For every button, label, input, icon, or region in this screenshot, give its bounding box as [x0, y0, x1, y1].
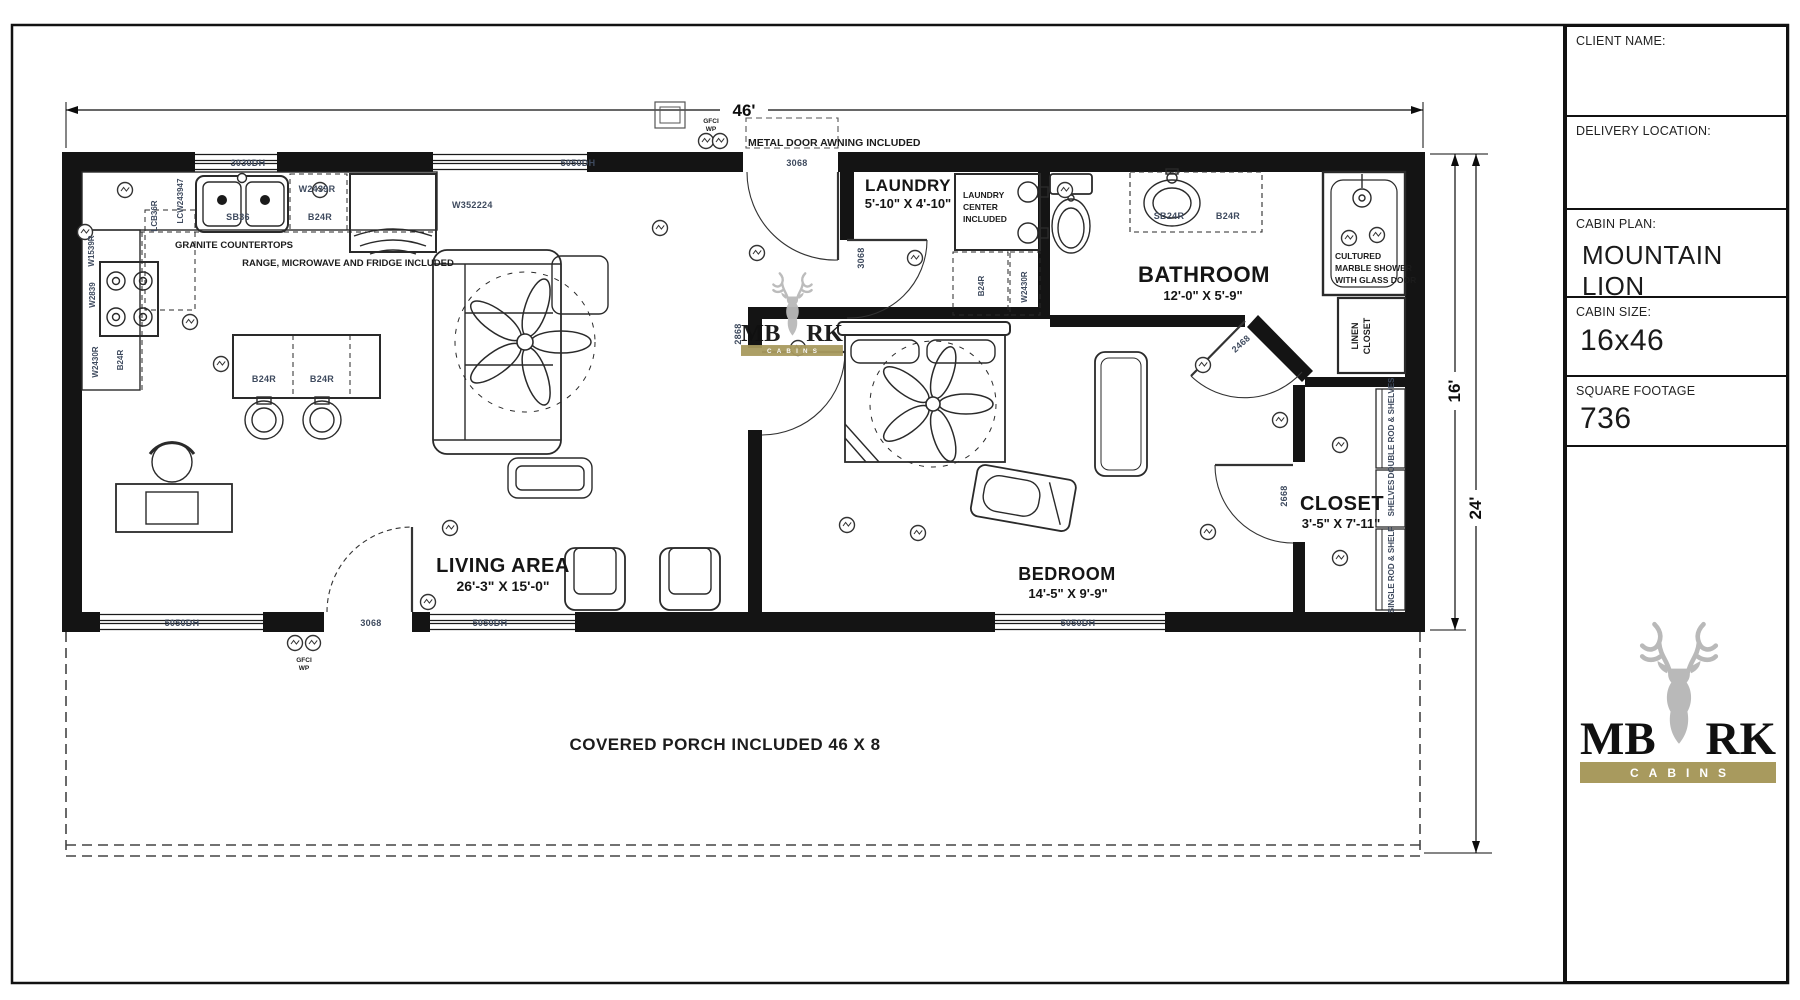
room-laundry-name: LAUNDRY — [865, 176, 951, 195]
ceiling-fan — [455, 272, 595, 412]
note-appliances: RANGE, MICROWAVE AND FRIDGE INCLUDED — [242, 258, 454, 269]
coffee-table — [508, 458, 592, 498]
label-laundry-base: B24R — [977, 276, 986, 297]
cabin-size-box: CABIN SIZE: 16x46 — [1565, 298, 1788, 377]
fridge — [350, 174, 436, 254]
dim-cabin-depth: 16' — [1445, 380, 1464, 403]
room-closet-size: 3'-5" X 7'-11" — [1302, 516, 1381, 531]
note-gfci-bottom-2: WP — [299, 665, 310, 672]
dim-overall-depth: 24' — [1466, 497, 1485, 520]
floor-plan-drawing: 46' 16' 24' — [0, 0, 1800, 1000]
brand-word-left: MB — [741, 321, 780, 345]
cabin-size-label: CABIN SIZE: — [1576, 305, 1777, 319]
label-vanity-sink-base: SB24R — [1154, 211, 1185, 221]
sofa — [433, 250, 561, 454]
note-linen-2: CLOSET — [1362, 317, 1372, 354]
laundry-center — [955, 174, 1048, 250]
kitchen-sink — [196, 174, 288, 233]
note-laundry-center-1: LAUNDRY — [963, 190, 1005, 200]
cabin-plan-value: MOUNTAIN LION — [1582, 240, 1777, 302]
mbark-watermark-logo: MB RK CABINS — [741, 292, 843, 370]
note-linen-1: LINEN — [1350, 323, 1360, 350]
note-granite: GRANITE COUNTERTOPS — [175, 240, 293, 251]
label-porch-door: 3068 — [360, 618, 381, 628]
brand-subtitle: CABINS — [762, 347, 822, 354]
mbark-logo: MB RK CABINS — [1580, 660, 1776, 810]
label-laundry-wall: W2430R — [1020, 271, 1029, 302]
note-gfci-top-2: WP — [706, 126, 717, 133]
bar-stool — [245, 397, 283, 439]
label-closet-double-rod: DOUBLE ROD & SHELVES — [1387, 377, 1396, 478]
room-living-name: LIVING AREA — [436, 555, 570, 577]
armchair — [660, 548, 720, 610]
label-island-right: B24R — [310, 374, 334, 384]
note-gfci-top-1: GFCI — [703, 118, 719, 125]
brand-word-right: RK — [806, 321, 843, 345]
kitchen — [82, 172, 437, 439]
bedroom-furniture — [838, 322, 1147, 532]
room-closet-name: CLOSET — [1300, 493, 1384, 515]
brand-word-right: RK — [1706, 716, 1777, 763]
label-closet-door: 2668 — [1279, 485, 1289, 506]
note-awning: METAL DOOR AWNING INCLUDED — [748, 137, 921, 149]
note-laundry-center-3: INCLUDED — [963, 214, 1007, 224]
client-name-box: CLIENT NAME: — [1565, 25, 1788, 117]
note-shower-3: WITH GLASS DOOR — [1335, 275, 1416, 285]
desk-and-chair — [116, 442, 232, 532]
label-closet-single-rod: SINGLE ROD & SHELF — [1387, 527, 1396, 613]
brand-subtitle-bar: CABINS — [741, 345, 843, 356]
label-tall-pantry: LCW243947 — [176, 178, 185, 223]
room-bathroom-size: 12'-0" X 5'-9" — [1163, 288, 1242, 303]
porch-door — [327, 527, 412, 612]
label-wall-left-mid: W2839 — [88, 282, 97, 308]
brand-word-left: MB — [1580, 716, 1656, 763]
square-footage-value: 736 — [1580, 402, 1777, 436]
label-window-living-top: 5050DH — [561, 158, 596, 168]
label-island-left: B24R — [252, 374, 276, 384]
brand-subtitle-bar: CABINS — [1580, 762, 1776, 783]
note-gfci-bottom-1: GFCI — [296, 657, 312, 664]
label-tall-cabinet: LCB36R — [150, 200, 159, 231]
room-living-size: 26'-3" X 15'-0" — [456, 578, 549, 594]
delivery-location-box: DELIVERY LOCATION: — [1565, 117, 1788, 210]
label-vanity-base: B24R — [1216, 211, 1240, 221]
interior-walls — [748, 172, 1405, 612]
square-footage-label: SQUARE FOOTAGE — [1576, 384, 1777, 398]
windows — [95, 152, 1170, 632]
label-window-bedroom: 5050DH — [1061, 618, 1096, 628]
label-base-left: B24R — [116, 350, 125, 371]
cabin-size-value: 16x46 — [1580, 324, 1777, 358]
room-laundry-size: 5'-10" X 4'-10" — [865, 196, 951, 211]
brand-subtitle: CABINS — [1620, 766, 1736, 780]
label-kitchen-wall: W2439R — [299, 184, 336, 194]
room-bathroom-name: BATHROOM — [1138, 262, 1270, 287]
label-closet-shelves: SHELVES — [1387, 479, 1396, 516]
cabin-plan-box: CABIN PLAN: MOUNTAIN LION — [1565, 210, 1788, 298]
doors — [327, 172, 1302, 612]
label-window-kitchen: 3030DH — [231, 158, 266, 168]
ceiling-fan — [870, 341, 996, 467]
delivery-location-label: DELIVERY LOCATION: — [1576, 124, 1777, 138]
range — [100, 262, 158, 336]
dim-overall-width: 46' — [733, 101, 756, 120]
label-front-door: 3068 — [786, 158, 807, 168]
label-laundry-door: 3068 — [856, 247, 866, 268]
square-footage-box: SQUARE FOOTAGE 736 — [1565, 377, 1788, 447]
bar-stool — [303, 397, 341, 439]
label-window-bottom-left: 5050DH — [165, 618, 200, 628]
kitchen-island — [233, 335, 380, 398]
note-laundry-center-2: CENTER — [963, 202, 998, 212]
client-name-label: CLIENT NAME: — [1576, 34, 1777, 48]
armchair — [565, 548, 625, 610]
label-sink-base: SB36 — [226, 212, 250, 222]
note-porch: COVERED PORCH INCLUDED 46 X 8 — [569, 735, 880, 754]
label-kitchen-base: B24R — [308, 212, 332, 222]
note-shower-2: MARBLE SHOWER — [1335, 263, 1412, 273]
bench — [970, 464, 1078, 533]
label-window-bottom-center: 5050DH — [473, 618, 508, 628]
label-wall-left-top: W1539R — [87, 235, 96, 266]
room-bedroom-name: BEDROOM — [1018, 564, 1116, 584]
label-wall-left-bottom: W2430R — [91, 346, 100, 377]
vanity — [1130, 169, 1262, 232]
brand-wordmark: MB RK — [1580, 716, 1776, 763]
floor-plan-sheet: 46' 16' 24' — [0, 0, 1800, 1000]
brand-wordmark: MB RK — [741, 321, 843, 345]
living-room-furniture — [116, 250, 720, 610]
note-shower-1: CULTURED — [1335, 251, 1381, 261]
title-block: CLIENT NAME: DELIVERY LOCATION: CABIN PL… — [1563, 25, 1788, 983]
wardrobe — [1095, 352, 1147, 476]
exterior-walls — [62, 152, 1425, 632]
room-bedroom-size: 14'-5" X 9'-9" — [1028, 586, 1107, 601]
cabin-plan-label: CABIN PLAN: — [1576, 217, 1777, 231]
label-fridge-wall: W352224 — [452, 200, 493, 210]
label-bathroom-door: 2468 — [1230, 333, 1252, 355]
